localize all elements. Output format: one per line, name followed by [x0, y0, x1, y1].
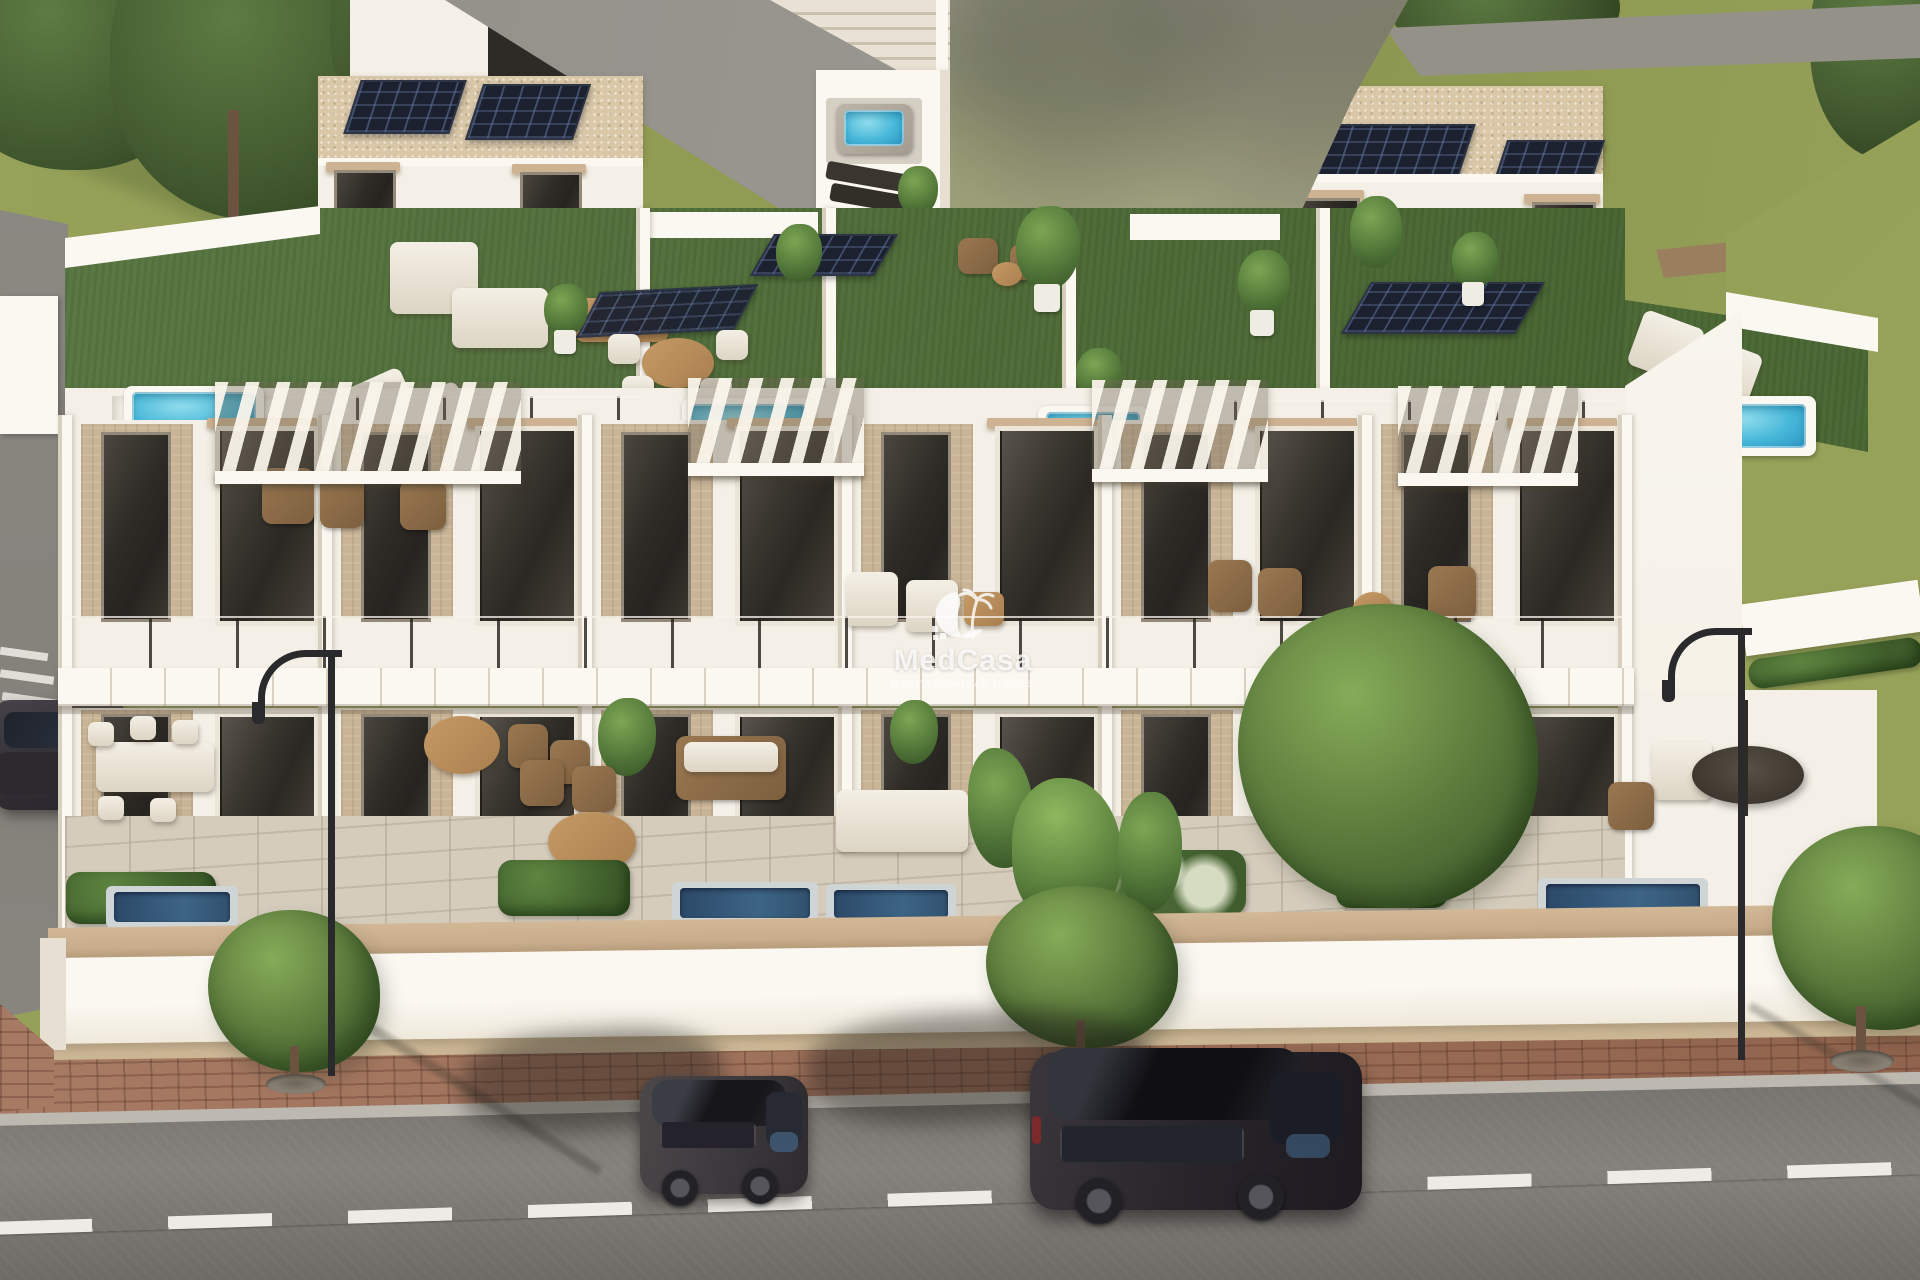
- car-wheel: [1238, 1174, 1284, 1220]
- balcony-chair: [400, 480, 446, 530]
- roof-parapet-rear: [1130, 214, 1280, 240]
- plant-pot: [1250, 310, 1274, 336]
- solar-panel-array: [465, 84, 591, 140]
- medcasa-logo-palm-beach-icon: [930, 588, 996, 646]
- terrace-sofa-cushion: [684, 742, 778, 772]
- architectural-render-canvas: MedCasa MEDITERRANEAN HOMES: [0, 0, 1920, 1280]
- car-suv-taillight: [1032, 1116, 1041, 1144]
- pergola-beam: [215, 471, 521, 484]
- car-wheel: [742, 1168, 778, 1204]
- street-lamp-head: [1662, 680, 1675, 702]
- watermark-tagline: MEDITERRANEAN HOMES: [846, 679, 1080, 689]
- tree-trunk: [228, 110, 239, 220]
- roof-chair: [716, 330, 748, 360]
- street-lamp-head: [252, 702, 265, 724]
- side-garden-wall: [0, 296, 58, 434]
- terrace-sofa: [836, 790, 968, 852]
- terrace-chair: [572, 766, 616, 812]
- plant-pot: [554, 330, 576, 354]
- watermark-brand: MedCasa: [846, 646, 1080, 676]
- terrace-chair: [150, 798, 176, 822]
- upper-sliding-door: [101, 432, 171, 622]
- street-lamp-pole: [1738, 630, 1745, 1060]
- pergola-beam: [1398, 473, 1578, 486]
- pergola: [215, 382, 521, 484]
- balcony-chair: [1208, 560, 1252, 612]
- roof-divider-wall: [1316, 208, 1330, 404]
- pergola-beam: [1092, 469, 1268, 482]
- terrace-chair: [1608, 782, 1654, 830]
- terrace-hedge: [498, 860, 630, 916]
- upper-sliding-door: [621, 432, 691, 622]
- car-hatchback-glint: [770, 1132, 798, 1152]
- terrace-dining-table: [96, 742, 214, 792]
- roof-rattan-chair: [958, 238, 998, 274]
- terrace-chair: [520, 760, 564, 806]
- solar-panel-on-turf: [1341, 282, 1545, 334]
- pergola: [1398, 386, 1578, 486]
- terrace-chair: [130, 716, 156, 740]
- terrace-round-table: [424, 716, 500, 774]
- street-lamp-pole: [328, 652, 335, 1076]
- car-wheel: [662, 1170, 698, 1206]
- wall-end-cap: [40, 938, 66, 1050]
- roof-sofa: [452, 288, 548, 348]
- pergola-beam: [688, 463, 864, 476]
- car-suv-roof-glass: [1048, 1048, 1300, 1120]
- plant-pot: [1034, 284, 1060, 312]
- ground-pool: [680, 888, 810, 918]
- parasol: [1692, 746, 1804, 804]
- car-hatchback-windows: [660, 1122, 756, 1148]
- solar-panel-array: [343, 80, 467, 134]
- car-wheel: [1076, 1178, 1122, 1224]
- pergola: [1092, 380, 1268, 482]
- terrace-chair: [88, 722, 114, 746]
- watermark: MedCasa MEDITERRANEAN HOMES: [846, 588, 1080, 698]
- terrace-chair: [172, 720, 198, 744]
- car-suv-glint: [1286, 1134, 1330, 1158]
- tree-planter: [1830, 1050, 1894, 1072]
- pergola: [688, 378, 864, 476]
- terrace-chair: [98, 796, 124, 820]
- roof-chair: [608, 334, 640, 364]
- balcony-chair: [1258, 568, 1302, 618]
- solar-panel-on-turf: [750, 234, 898, 276]
- plant-pot: [1462, 282, 1484, 306]
- ground-pool: [834, 890, 948, 918]
- jacuzzi-water: [844, 110, 904, 146]
- ground-pool: [114, 892, 230, 922]
- tree-planter: [266, 1074, 326, 1094]
- car-suv-windows: [1060, 1126, 1244, 1162]
